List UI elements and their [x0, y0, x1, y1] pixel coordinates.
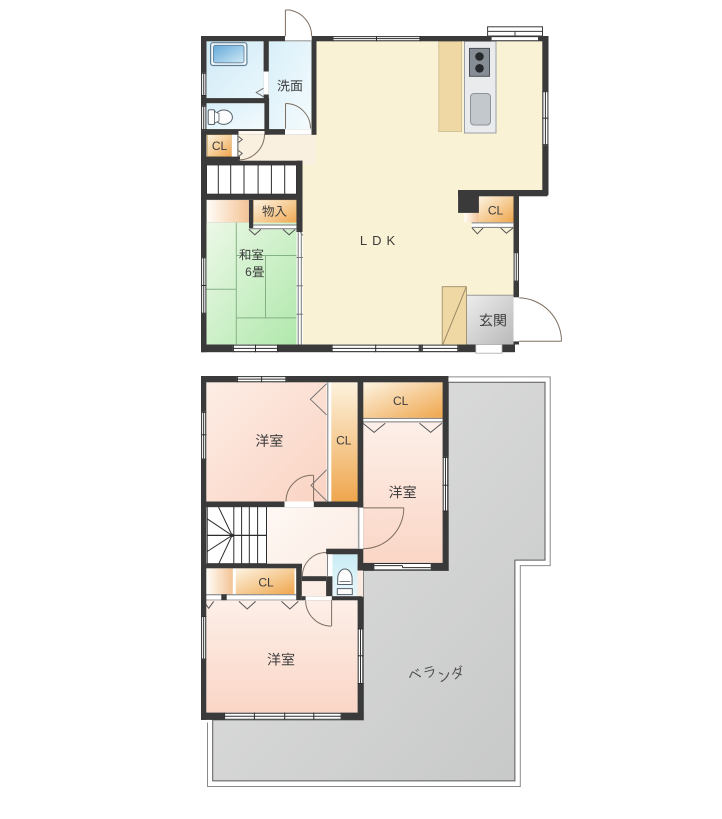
svg-text:6: 6: [245, 265, 252, 279]
svg-text:CL: CL: [336, 434, 352, 448]
svg-text:CL: CL: [212, 139, 228, 153]
svg-text:CL: CL: [393, 394, 409, 408]
svg-text:CL: CL: [488, 204, 504, 218]
svg-text:LDK: LDK: [360, 233, 400, 248]
svg-text:CL: CL: [258, 576, 274, 590]
